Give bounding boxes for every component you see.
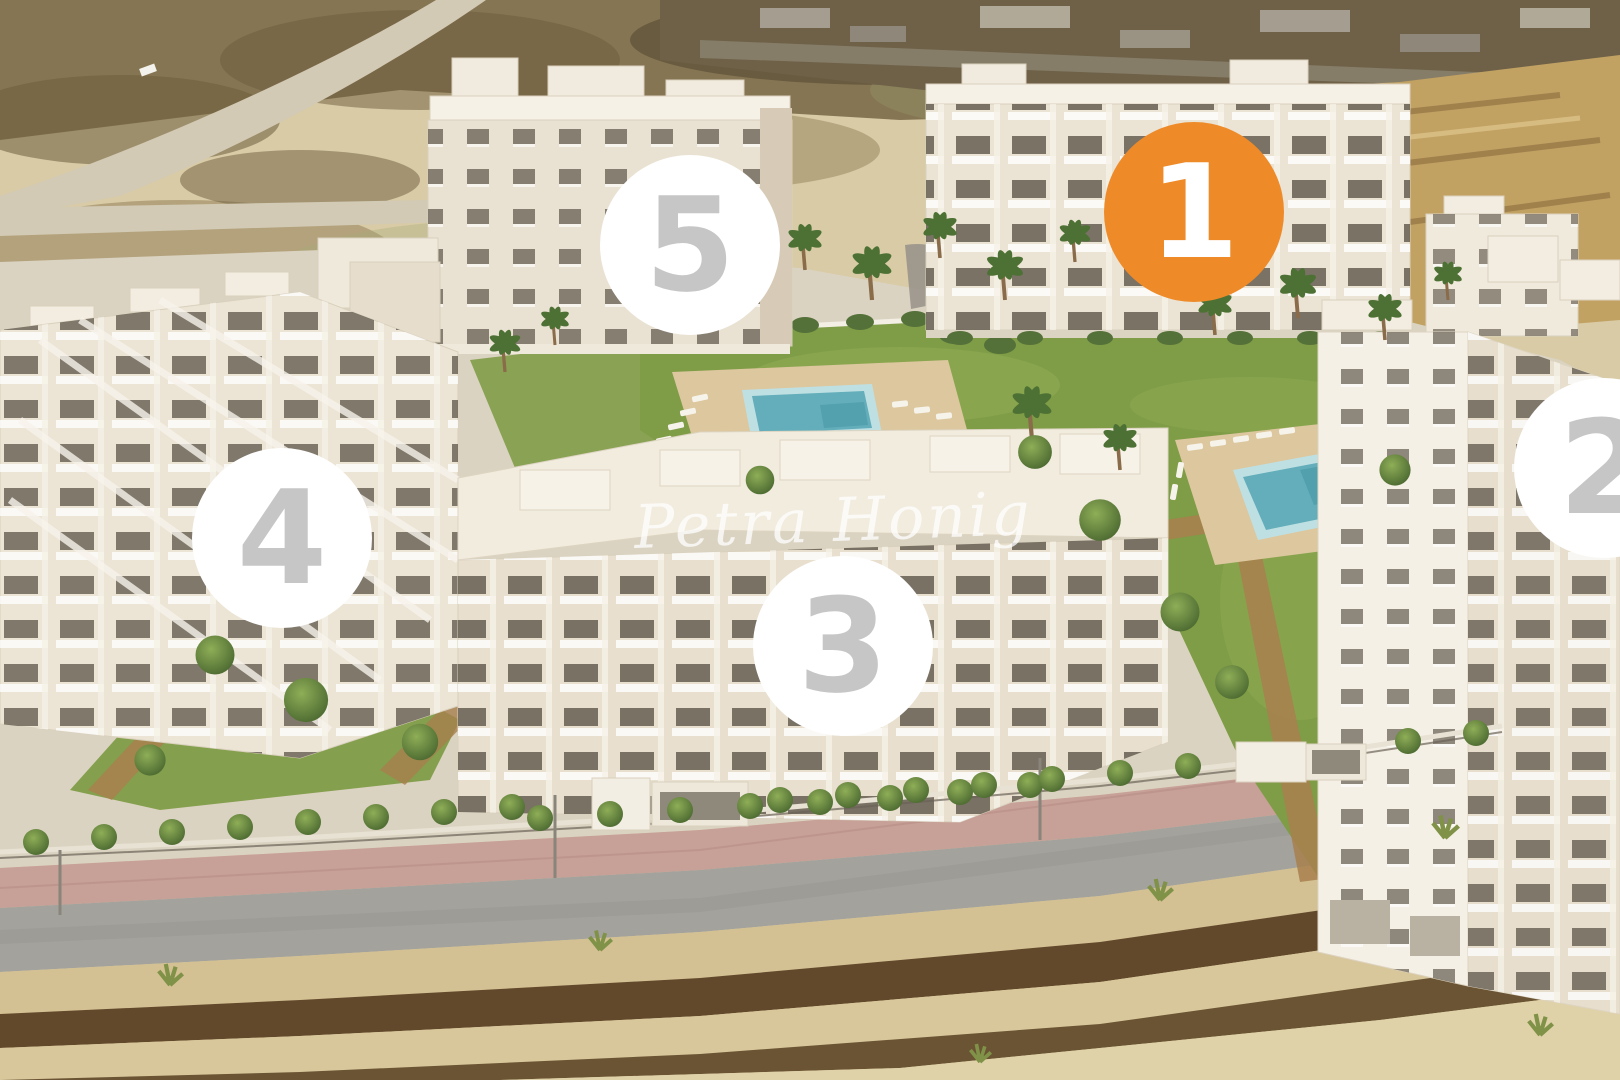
entrance-gate-right [1236, 742, 1366, 782]
building-marker-3[interactable]: 3 [753, 556, 933, 736]
building-marker-4[interactable]: 4 [192, 448, 372, 628]
building-marker-5[interactable]: 5 [600, 155, 780, 335]
building-marker-5-label: 5 [645, 180, 735, 310]
building-marker-4-label: 4 [237, 473, 327, 603]
building-marker-1-label: 1 [1149, 147, 1239, 277]
building-marker-1[interactable]: 1 [1104, 122, 1284, 302]
site-plan-image: Petra Honig 1 5 4 3 2 [0, 0, 1620, 1080]
building-marker-3-label: 3 [798, 581, 888, 711]
building-marker-2-label: 2 [1559, 403, 1620, 533]
